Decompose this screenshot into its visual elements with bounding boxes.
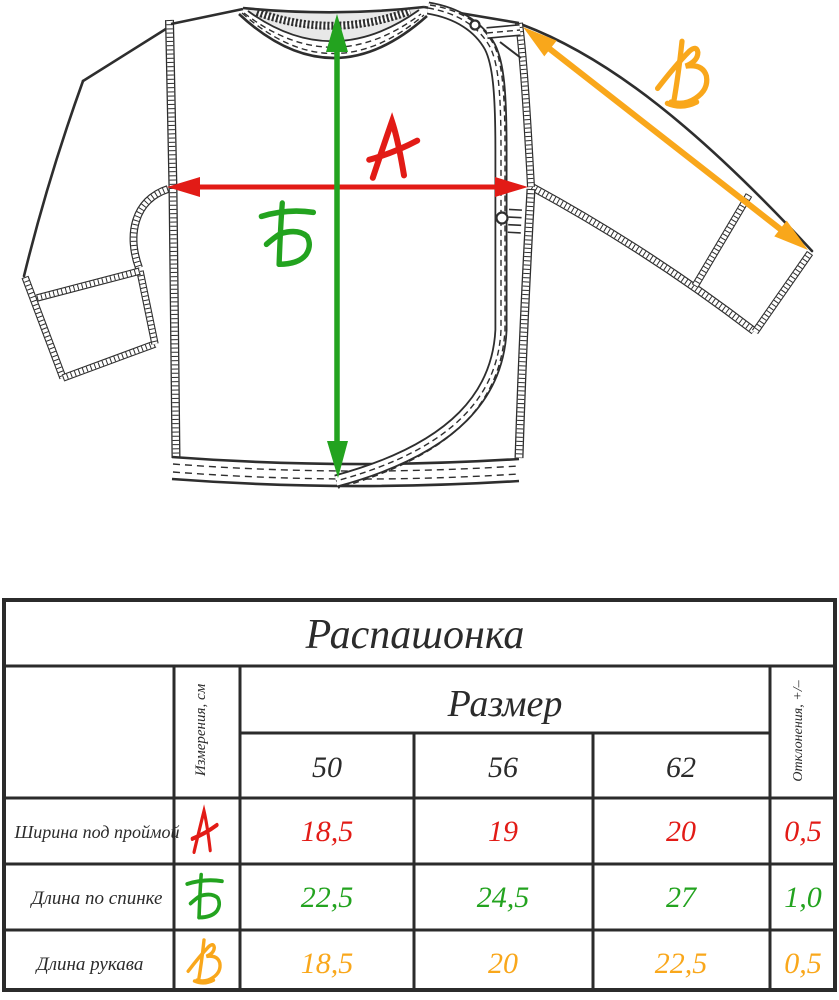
svg-text:Длина по спинке: Длина по спинке (29, 888, 162, 909)
svg-text:27: 27 (666, 881, 698, 914)
svg-text:Измерения, см: Измерения, см (193, 683, 209, 777)
svg-text:0,5: 0,5 (784, 815, 822, 848)
svg-text:20: 20 (666, 815, 696, 848)
svg-text:56: 56 (488, 751, 518, 784)
svg-text:22,5: 22,5 (655, 947, 708, 980)
svg-text:50: 50 (312, 751, 342, 784)
svg-text:19: 19 (488, 815, 518, 848)
svg-text:20: 20 (488, 947, 518, 980)
svg-text:18,5: 18,5 (301, 947, 354, 980)
svg-text:0,5: 0,5 (784, 947, 822, 980)
svg-text:18,5: 18,5 (301, 815, 354, 848)
svg-text:Ширина под проймой: Ширина под проймой (13, 822, 179, 842)
svg-text:Отклонения, +/–: Отклонения, +/– (791, 679, 806, 781)
svg-text:62: 62 (666, 751, 696, 784)
svg-text:Распашонка: Распашонка (305, 612, 525, 658)
svg-text:Размер: Размер (447, 683, 563, 725)
svg-text:24,5: 24,5 (477, 881, 530, 914)
svg-text:1,0: 1,0 (784, 881, 822, 914)
svg-text:22,5: 22,5 (301, 881, 354, 914)
svg-text:Длина рукава: Длина рукава (35, 954, 144, 975)
